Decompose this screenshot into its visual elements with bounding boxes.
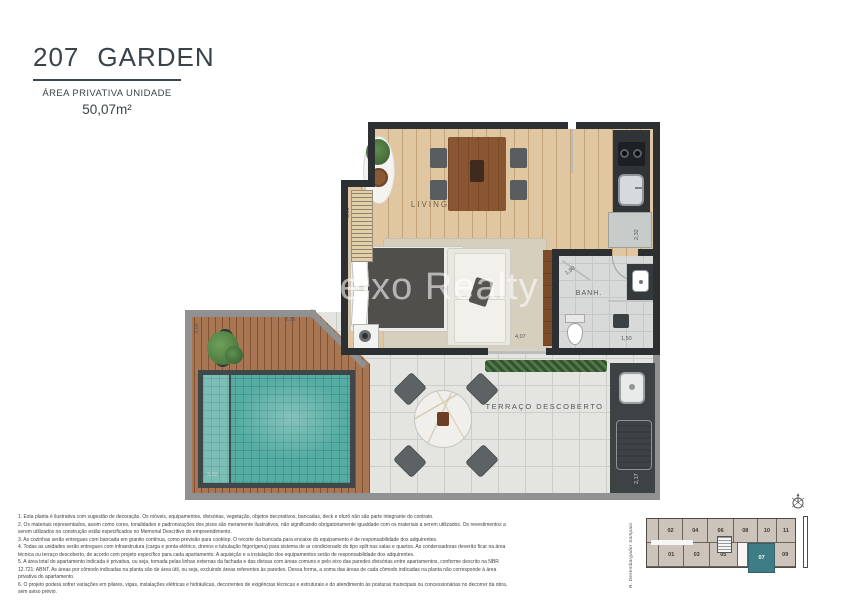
keyplan-unit-01: 01 (659, 543, 684, 567)
terrace-label: TERRAÇO DESCOBERTO (457, 402, 632, 411)
plan-header: 207 GARDEN ÁREA PRIVATIVA UNIDADE 50,07m… (33, 42, 193, 117)
dining-chair (510, 148, 527, 168)
terrace-wall-bottom (185, 493, 660, 500)
bathroom-wall-top (552, 249, 612, 256)
disclaimer-line: 5. A área total do apartamento indicada … (18, 559, 515, 582)
fridge-counter (608, 212, 652, 248)
disclaimer-line: 1. Esta planta é ilustrativa com sugestã… (18, 514, 515, 522)
keyplan-building: 02 04 06 08 10 11 01 03 05 07 09 (646, 518, 796, 568)
bath-sink-icon (632, 270, 649, 292)
burner-icon (620, 149, 629, 158)
bathroom-wall-stub (638, 249, 653, 256)
grill-icon (616, 420, 652, 470)
annex-wall-left (341, 180, 348, 355)
bathroom-label: BANH. (559, 290, 619, 297)
dining-chair (430, 148, 447, 168)
washer-icon (353, 324, 379, 350)
page-title: 207 GARDEN (33, 42, 193, 73)
terrace-wall-top (185, 310, 316, 317)
dim-pool-width: 3,82 (207, 472, 218, 478)
table-decor-icon (470, 160, 484, 182)
deck-plant-leaf-icon (225, 346, 243, 364)
private-area-value: 50,07m² (33, 102, 181, 117)
window-line (571, 129, 573, 173)
sofa (447, 248, 511, 346)
apartment-wall-right (653, 122, 660, 355)
disclaimer-line: 6. O projeto poderá sofrer variações em … (18, 582, 515, 597)
keyplan-core-stairs (717, 536, 732, 553)
cooktop-icon (618, 142, 645, 166)
floorplan-page: { "header": { "unit_number": "207", "uni… (0, 0, 848, 600)
sink-drain-icon (639, 280, 643, 284)
shower-drain-icon (613, 314, 629, 328)
dim-bath-width: 1,50 (621, 336, 632, 342)
hedge-icon (485, 360, 607, 372)
dim-deck-height: 3,05 (194, 323, 200, 334)
watermark-flower-icon: ✽ (267, 269, 294, 307)
toilet-tank-icon (565, 314, 585, 323)
keyplan-right-wing (803, 516, 808, 568)
bathroom-wall-left (552, 249, 559, 348)
north-compass-icon (788, 492, 808, 512)
dining-chair (430, 180, 447, 200)
keyplan-unit-08: 08 (734, 519, 758, 543)
sliding-door-line (488, 349, 546, 351)
keyplan-unit-11: 11 (777, 519, 795, 543)
keyplan-unit-03: 03 (684, 543, 709, 567)
faucet-icon (635, 187, 642, 189)
street-label: R. Desembargador Sampaio (628, 506, 633, 588)
living-label: LIVING (395, 200, 465, 209)
apartment-wall-left-upper (368, 122, 375, 187)
keyplan-unit-09: 09 (775, 543, 795, 567)
pool-bench (203, 375, 231, 483)
unit-number: 207 (33, 42, 79, 73)
dining-chair (510, 180, 527, 200)
plunge-pool (198, 370, 355, 488)
dim-kitchen-depth: 2,32 (634, 229, 640, 240)
table-centerpiece (437, 412, 449, 426)
keyplan-corridor (738, 543, 748, 567)
burner-icon (633, 149, 642, 158)
private-area-label: ÁREA PRIVATIVA UNIDADE (33, 88, 181, 99)
kitchen-sink-icon (618, 174, 644, 206)
dim-living-width: 4,07 (515, 334, 526, 340)
stairs-hatch (351, 190, 373, 262)
dim-deck-width: 2,95 (285, 317, 296, 323)
keyplan: R. Desembargador Sampaio 02 04 06 08 10 … (620, 492, 845, 596)
sliding-door-line (488, 352, 546, 354)
bed-duvet (368, 248, 444, 328)
apartment-wall-bottom-right (546, 348, 660, 355)
sink-drain-icon (629, 384, 635, 390)
title-rule (33, 79, 181, 81)
washer-door-icon (359, 330, 371, 342)
disclaimer-line: 4. Todas as unidades serão entregues com… (18, 544, 515, 559)
keyplan-unit-10: 10 (758, 519, 777, 543)
keyplan-edge (647, 543, 659, 567)
apartment-wall-top-right (576, 122, 660, 129)
terrace-wall-left (185, 310, 192, 500)
floor-plan: 3,82 3,05 2,95 TERRAÇO DESCOBERTO 2,17 (185, 118, 665, 508)
gourmet-sink-icon (619, 372, 645, 404)
pillow-icon (351, 289, 369, 326)
apartment-wall-bottom-left (341, 348, 488, 355)
apartment-wall-top-left (368, 122, 568, 129)
keyplan-unit-07-highlighted: 07 (748, 543, 776, 573)
disclaimer-line: 3. As cozinhas serão entregues com banca… (18, 537, 515, 545)
disclaimer-notes: 1. Esta planta é ilustrativa com sugestã… (18, 514, 515, 597)
shower-divider-line (608, 300, 653, 302)
dim-gourmet-height: 2,17 (634, 473, 640, 484)
keyplan-corridor-strip (651, 540, 693, 545)
unit-name: GARDEN (97, 42, 214, 73)
disclaimer-line: 2. Os materiais representados, assim com… (18, 522, 515, 537)
